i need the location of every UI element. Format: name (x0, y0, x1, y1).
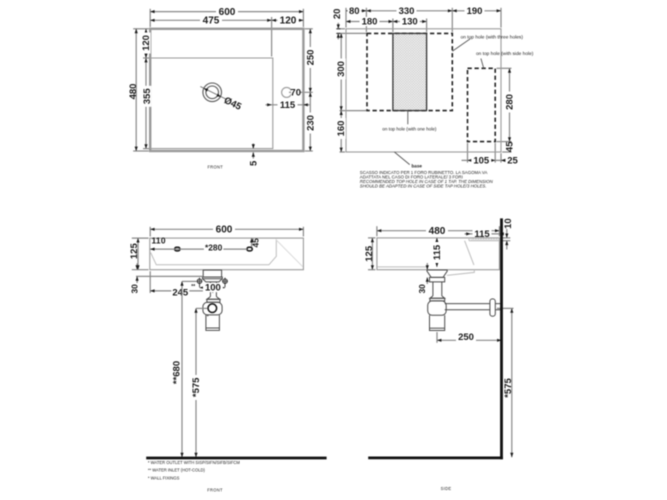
svg-text:125: 125 (364, 245, 375, 262)
svg-text:190: 190 (467, 6, 483, 17)
svg-text:120: 120 (280, 16, 297, 27)
svg-text:*575: *575 (191, 377, 202, 397)
svg-text:FRONT: FRONT (207, 487, 223, 492)
svg-text:250: 250 (305, 50, 316, 66)
svg-text:** WATER INLET (HOT-COLD): ** WATER INLET (HOT-COLD) (148, 467, 206, 472)
svg-text:250: 250 (458, 332, 474, 343)
svg-text:*280: *280 (205, 243, 223, 253)
svg-text:25: 25 (507, 155, 518, 166)
svg-text:115: 115 (280, 100, 296, 111)
svg-text:5: 5 (249, 160, 260, 166)
svg-text:**680: **680 (172, 361, 183, 384)
svg-text:300: 300 (336, 61, 347, 77)
svg-text:SIDE: SIDE (441, 486, 452, 491)
svg-text:on top hole (with side hole): on top hole (with side hole) (476, 51, 534, 57)
svg-text:245: 245 (172, 287, 189, 298)
svg-text:475: 475 (203, 16, 220, 27)
svg-text:230: 230 (305, 115, 316, 131)
svg-text:on top hole (with one hole): on top hole (with one hole) (382, 126, 437, 131)
svg-text:45: 45 (505, 141, 516, 152)
svg-text:45: 45 (250, 238, 260, 248)
svg-text:30: 30 (129, 284, 139, 294)
svg-text:base: base (412, 164, 423, 169)
svg-text:180: 180 (362, 17, 378, 28)
svg-text:105: 105 (473, 155, 490, 166)
svg-text:125: 125 (129, 243, 140, 260)
svg-text:120: 120 (141, 35, 152, 51)
svg-text:10: 10 (503, 218, 514, 229)
svg-text:480: 480 (128, 84, 139, 100)
svg-text:160: 160 (336, 121, 347, 137)
svg-text:**: ** (191, 284, 195, 290)
svg-text:355: 355 (142, 88, 153, 105)
svg-text:SHOULD BE ADAPTED IN CASE OF S: SHOULD BE ADAPTED IN CASE OF SIDE TAP HO… (360, 183, 487, 188)
svg-text:* WALL FIXINGS: * WALL FIXINGS (148, 475, 180, 480)
svg-text:on top hole (with three holes): on top hole (with three holes) (461, 34, 524, 40)
svg-text:FRONT: FRONT (207, 165, 223, 170)
svg-text:80: 80 (349, 6, 360, 17)
svg-text:600: 600 (216, 225, 233, 236)
svg-text:* WATER OUTLET WITH SISP/SIFN: * WATER OUTLET WITH SISP/SIFN/SIFB/SIFCM (148, 460, 240, 465)
svg-text:130: 130 (402, 17, 418, 28)
svg-text:115: 115 (432, 244, 443, 260)
svg-text:70: 70 (290, 87, 301, 98)
svg-text:110: 110 (152, 235, 166, 245)
svg-text:480: 480 (429, 226, 446, 237)
svg-text:*575: *575 (503, 378, 514, 398)
svg-text:330: 330 (399, 6, 415, 17)
svg-text:20: 20 (332, 9, 343, 20)
svg-text:280: 280 (505, 94, 516, 110)
svg-text:30: 30 (417, 284, 427, 294)
svg-text:100: 100 (205, 283, 221, 294)
